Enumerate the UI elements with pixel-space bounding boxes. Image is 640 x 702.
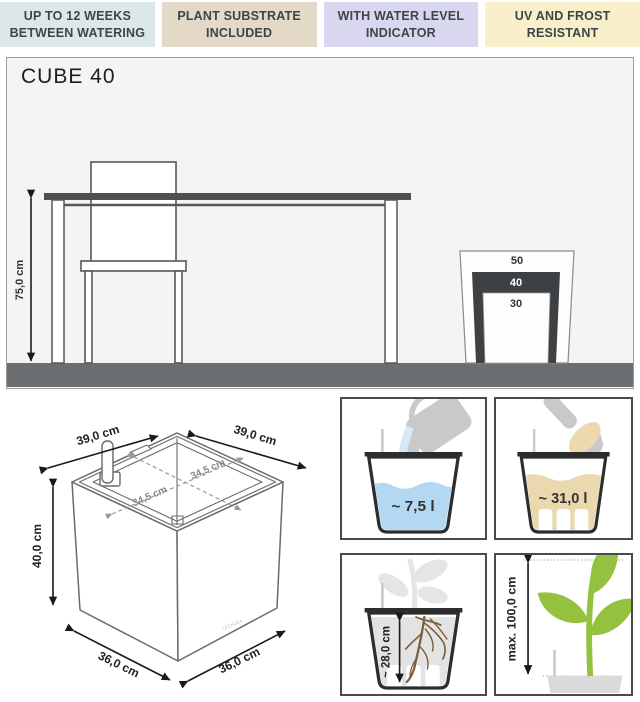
water-level-indicator-icon: [553, 650, 555, 676]
feature-badges: UP TO 12 WEEKS BETWEEN WATERING PLANT SU…: [0, 2, 640, 47]
plant-icon: [533, 555, 631, 676]
size-40-label: 40: [510, 277, 522, 289]
liner-feet: [539, 509, 589, 532]
tabletop: [44, 193, 411, 200]
badge-uv-frost-resistant: UV AND FROST RESISTANT: [485, 2, 640, 47]
chair-silhouette: [81, 162, 186, 363]
size-50-label: 50: [511, 255, 523, 267]
bottom-width-right-label: 36,0 cm: [216, 644, 262, 676]
size-30-label: 30: [510, 298, 522, 310]
badge-water-level-indicator: WITH WATER LEVEL INDICATOR: [324, 2, 479, 47]
water-capacity-panel: ~ 7,5 l: [340, 397, 487, 540]
top-width-left-label: 39,0 cm: [75, 425, 121, 448]
top-width-right-label: 39,0 cm: [232, 425, 278, 448]
badge-substrate-included: PLANT SUBSTRATE INCLUDED: [162, 2, 317, 47]
floor: [7, 363, 633, 387]
feature-panels: ~ 7,5 l ~ 31,0 l: [340, 397, 633, 696]
planter-isometric-diagram: 34,5 cm 34,5 cm 39,0 cm 39,0 cm 40,0 cm …: [0, 425, 330, 697]
size-comparison-diagram: CUBE 40 75,0 cm: [6, 57, 634, 389]
badge-watering-interval: UP TO 12 WEEKS BETWEEN WATERING: [0, 2, 155, 47]
table-height-label: 75,0 cm: [14, 260, 26, 301]
pot-rim: [517, 452, 609, 457]
plant-height-value: max. 100,0 cm: [505, 577, 519, 662]
substrate-volume-value: ~ 31,0 l: [539, 491, 588, 507]
water-level-indicator-icon: [381, 583, 384, 610]
root-depth-value: ~ 28,0 cm: [379, 626, 392, 678]
water-level-indicator-icon: [533, 429, 535, 456]
pot-rim: [365, 452, 463, 457]
substrate-volume-panel: ~ 31,0 l: [494, 397, 633, 540]
plant-height-panel: max. 100,0 cm: [494, 553, 633, 696]
table-height-dimension: 75,0 cm: [14, 198, 31, 361]
pot-rim: [365, 608, 463, 613]
faint-plant-silhouette: [374, 555, 451, 613]
planter-size-chart: 50 40 30: [460, 251, 574, 363]
water-level-indicator-icon: [381, 429, 384, 456]
root-depth-panel: ~ 28,0 cm: [340, 553, 487, 696]
water-volume-value: ~ 7,5 l: [391, 498, 434, 515]
size-comparison-drawing: 75,0 cm 50 40 30: [7, 58, 633, 388]
planter-base: [547, 676, 622, 693]
height-label: 40,0 cm: [30, 524, 44, 568]
